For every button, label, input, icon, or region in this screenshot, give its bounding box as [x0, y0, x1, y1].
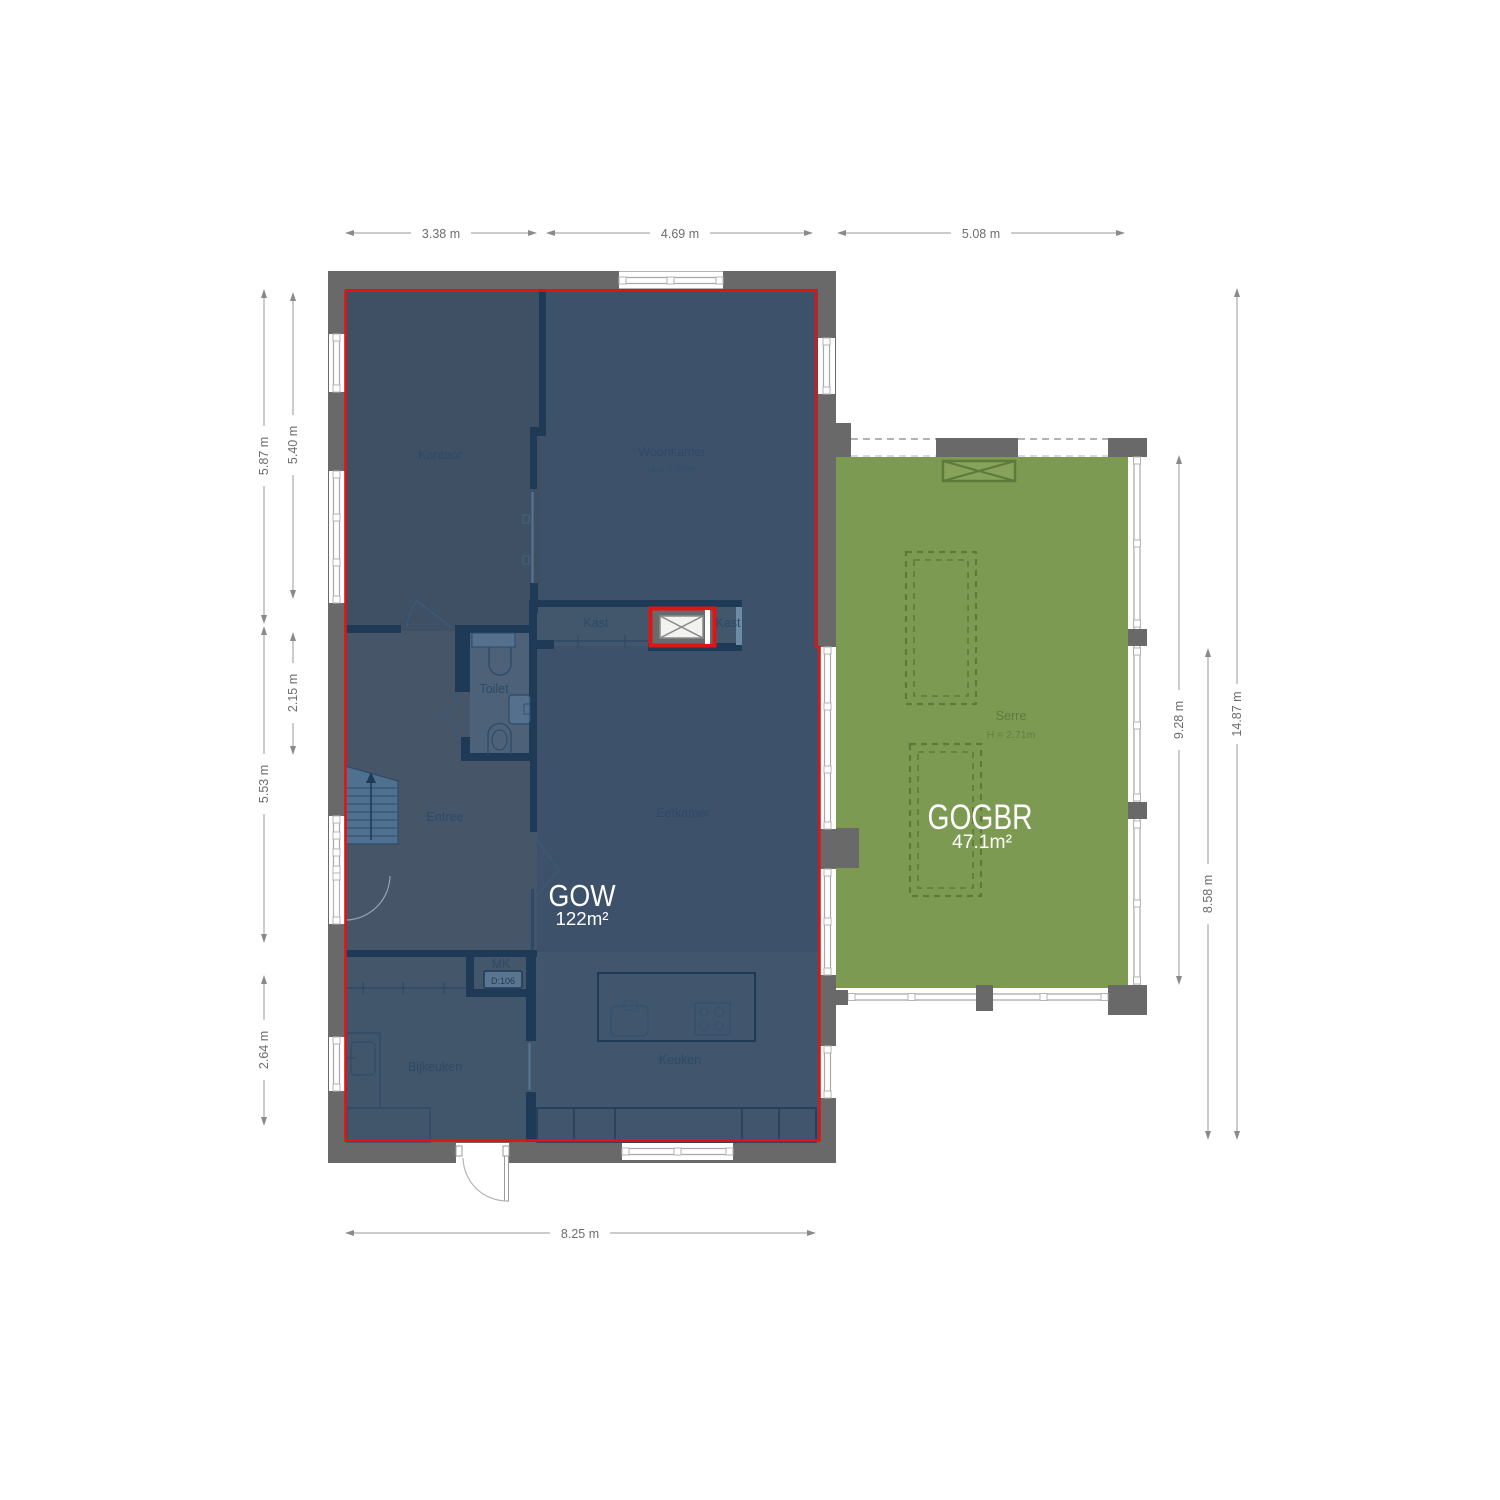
svg-text:Kast: Kast [583, 616, 609, 630]
svg-text:Bijkeuken: Bijkeuken [408, 1060, 462, 1074]
svg-text:47.1m²: 47.1m² [952, 832, 1012, 853]
svg-text:14.87 m: 14.87 m [1230, 691, 1244, 736]
svg-text:Entree: Entree [427, 810, 464, 824]
svg-text:8.25 m: 8.25 m [561, 1227, 599, 1241]
svg-text:9.28 m: 9.28 m [1172, 701, 1186, 739]
svg-text:2.64 m: 2.64 m [257, 1031, 271, 1069]
svg-text:3.38 m: 3.38 m [422, 227, 460, 241]
svg-text:Woonkamer: Woonkamer [638, 445, 705, 459]
svg-text:D:106: D:106 [491, 976, 515, 986]
svg-text:Eetkamer: Eetkamer [656, 806, 710, 820]
svg-text:5.40 m: 5.40 m [286, 426, 300, 464]
svg-text:122m²: 122m² [556, 908, 609, 929]
svg-text:Serre: Serre [996, 709, 1027, 723]
svg-text:Toilet: Toilet [479, 682, 509, 696]
svg-text:H = 2.71m: H = 2.71m [987, 729, 1036, 741]
svg-text:Kantoor: Kantoor [418, 448, 462, 462]
svg-text:Keuken: Keuken [659, 1053, 701, 1067]
svg-text:8.58 m: 8.58 m [1201, 875, 1215, 913]
svg-text:H = 2.70m: H = 2.70m [648, 464, 697, 476]
svg-text:5.87 m: 5.87 m [257, 437, 271, 475]
svg-text:Kast: Kast [715, 616, 741, 630]
svg-text:MK: MK [492, 957, 511, 971]
svg-text:4.69 m: 4.69 m [661, 227, 699, 241]
svg-text:5.53 m: 5.53 m [257, 765, 271, 803]
svg-text:2.15 m: 2.15 m [286, 674, 300, 712]
svg-text:5.08 m: 5.08 m [962, 227, 1000, 241]
